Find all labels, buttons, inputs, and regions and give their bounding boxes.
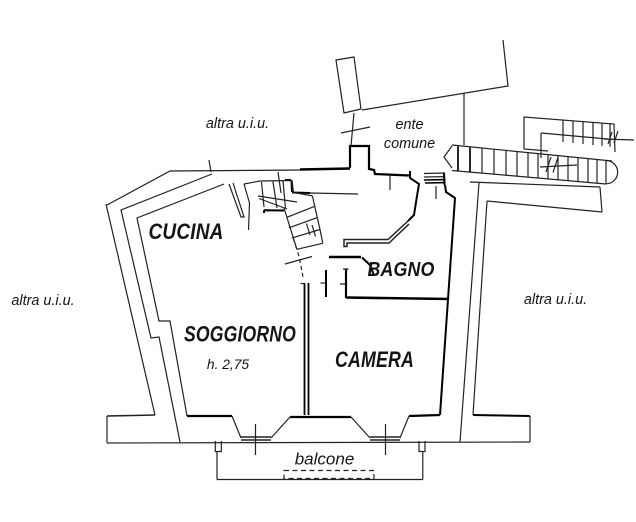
svg-text:balcone: balcone [295,450,355,469]
svg-text:comune: comune [384,136,435,152]
svg-text:altra u.i.u.: altra u.i.u. [524,292,587,308]
svg-text:altra u.i.u.: altra u.i.u. [206,116,269,132]
svg-text:h. 2,75: h. 2,75 [207,357,250,372]
svg-text:BAGNO: BAGNO [368,259,435,282]
svg-text:SOGGIORNO: SOGGIORNO [184,322,296,347]
svg-text:altra u.i.u.: altra u.i.u. [11,293,74,309]
svg-text:ente: ente [395,117,423,133]
svg-text:CUCINA: CUCINA [148,220,223,245]
svg-text:CAMERA: CAMERA [335,348,414,373]
